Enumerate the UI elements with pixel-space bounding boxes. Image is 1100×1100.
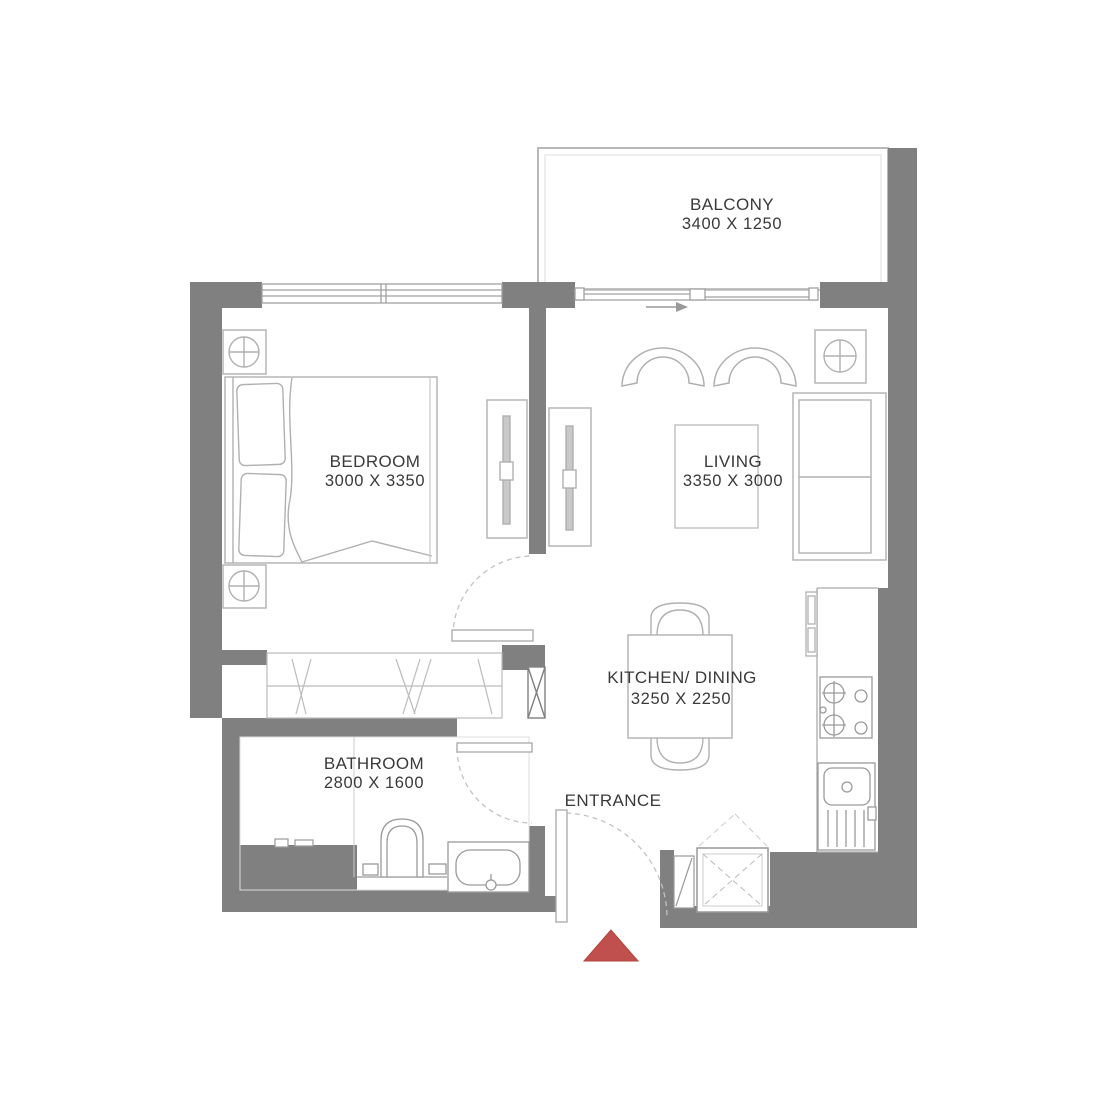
room-dims-bedroom: 3000 X 3350 <box>325 472 425 491</box>
room-dims-kitchen-dining: 3250 X 2250 <box>631 690 731 709</box>
sliding-wardrobe <box>267 653 502 718</box>
floor-plan: BALCONY 3400 X 1250 BEDROOM 3000 X 3350 … <box>0 0 1100 1100</box>
duct-shaft <box>697 814 768 912</box>
armchair-left <box>622 348 704 386</box>
room-dims-bathroom: 2800 X 1600 <box>324 774 424 793</box>
room-label-bedroom: BEDROOM <box>330 452 421 471</box>
duct-column <box>528 667 545 718</box>
slide-direction-arrow-icon <box>646 302 688 312</box>
bedroom-window <box>262 284 502 303</box>
sofa <box>793 393 886 560</box>
kitchen-sink <box>818 763 876 850</box>
floor-plan-drawing <box>0 0 1100 1100</box>
tv-unit-bedroom <box>487 400 527 538</box>
toilet <box>363 819 446 877</box>
tv-unit-living <box>549 408 591 546</box>
dining-chair-top <box>651 603 709 636</box>
dining-chair-bottom <box>651 737 709 770</box>
room-label-entrance: ENTRANCE <box>565 791 662 810</box>
room-label-balcony: BALCONY <box>690 195 774 214</box>
entry-direction-triangle <box>584 930 638 961</box>
room-label-bathroom: BATHROOM <box>324 754 424 773</box>
entrance-door-swing <box>556 810 667 922</box>
entrance-side-panel <box>674 856 694 908</box>
side-table-lamp <box>815 330 866 383</box>
room-label-kitchen-dining: KITCHEN/ DINING <box>607 668 757 687</box>
room-label-living: LIVING <box>704 452 762 471</box>
tall-kitchen-unit <box>806 592 817 656</box>
room-dims-living: 3350 X 3000 <box>683 472 783 491</box>
armchair-right <box>714 348 796 386</box>
bedroom-door-swing <box>452 556 533 641</box>
bathtub <box>448 842 529 892</box>
room-dims-balcony: 3400 X 1250 <box>682 215 782 234</box>
stove-hob <box>820 677 872 738</box>
nightstand-top <box>223 330 266 374</box>
bathroom-door-swing <box>457 743 532 823</box>
nightstand-bottom <box>223 565 266 608</box>
